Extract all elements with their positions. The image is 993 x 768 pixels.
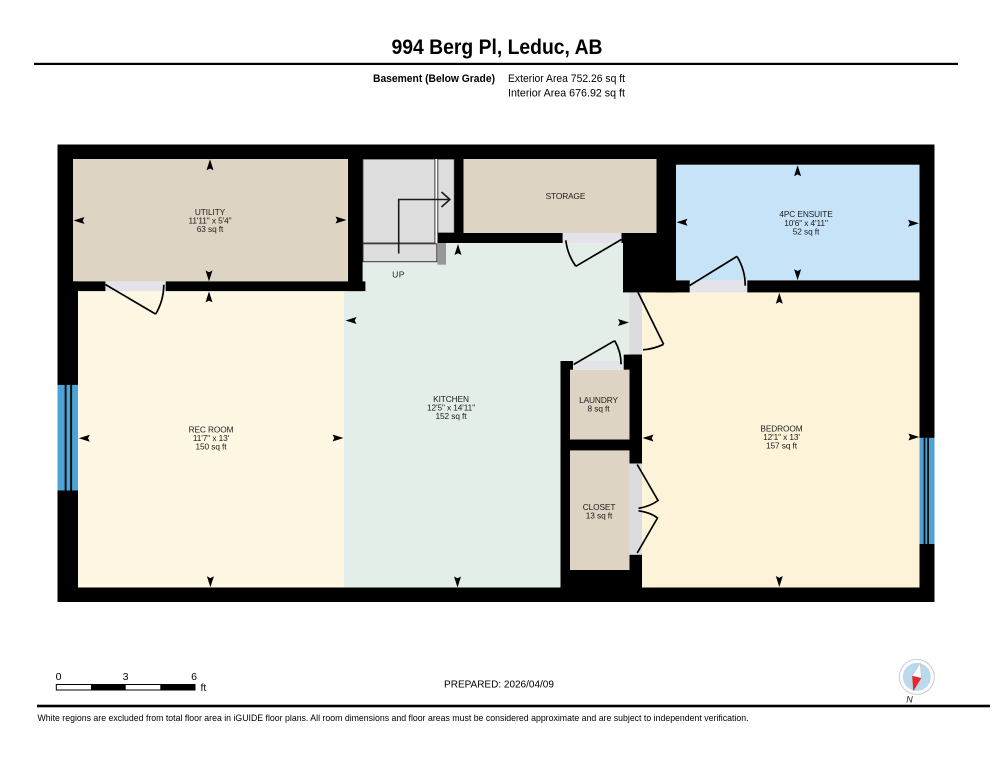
svg-text:3: 3 — [123, 671, 129, 683]
svg-text:152 sq ft: 152 sq ft — [436, 411, 468, 421]
svg-text:157 sq ft: 157 sq ft — [766, 441, 798, 451]
svg-text:White regions are excluded fro: White regions are excluded from total fl… — [38, 713, 749, 723]
svg-text:N: N — [906, 695, 913, 705]
svg-text:PREPARED: 2026/04/09: PREPARED: 2026/04/09 — [444, 680, 554, 691]
svg-text:STORAGE: STORAGE — [546, 191, 586, 201]
svg-text:ft: ft — [201, 682, 207, 694]
svg-text:63 sq ft: 63 sq ft — [197, 224, 224, 234]
svg-text:UP: UP — [392, 270, 405, 280]
svg-text:6: 6 — [191, 671, 197, 683]
svg-text:150 sq ft: 150 sq ft — [196, 442, 228, 452]
svg-text:Interior Area 676.92 sq ft: Interior Area 676.92 sq ft — [508, 88, 625, 100]
svg-text:13 sq ft: 13 sq ft — [586, 511, 613, 521]
svg-text:52 sq ft: 52 sq ft — [793, 226, 820, 236]
svg-text:994 Berg Pl, Leduc, AB: 994 Berg Pl, Leduc, AB — [392, 36, 603, 59]
svg-text:Basement (Below Grade): Basement (Below Grade) — [373, 73, 495, 85]
svg-text:8 sq ft: 8 sq ft — [588, 403, 611, 413]
svg-text:0: 0 — [56, 671, 62, 683]
svg-text:Exterior Area 752.26 sq ft: Exterior Area 752.26 sq ft — [508, 73, 625, 85]
